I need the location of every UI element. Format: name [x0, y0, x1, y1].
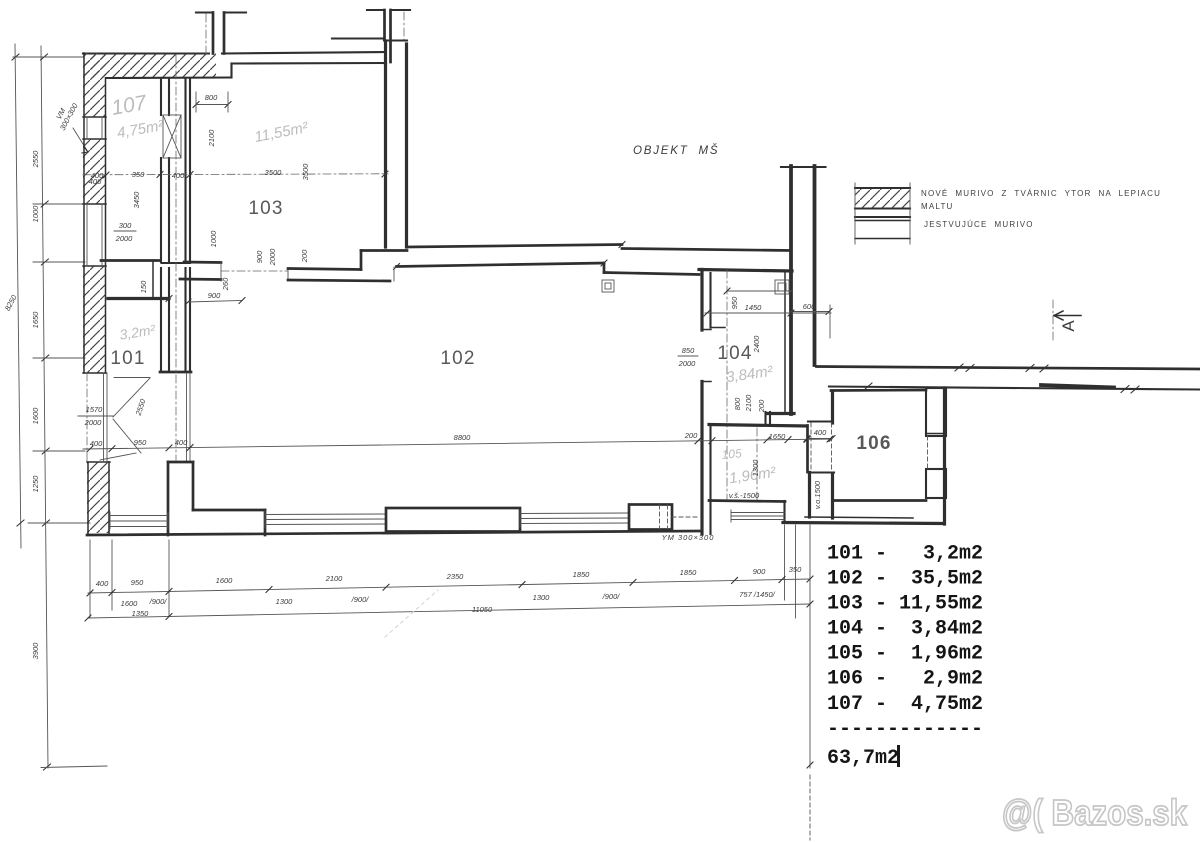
svg-text:v.o.1500: v.o.1500 [813, 480, 822, 509]
svg-text:2550: 2550 [31, 150, 40, 169]
svg-text:800: 800 [205, 93, 218, 102]
svg-text:900: 900 [753, 567, 766, 576]
svg-text:8800: 8800 [454, 433, 472, 442]
svg-text:2350: 2350 [446, 572, 465, 581]
svg-text:8250: 8250 [3, 293, 19, 313]
svg-text:1850: 1850 [680, 568, 698, 577]
svg-text:400: 400 [172, 171, 185, 180]
svg-text:350: 350 [132, 170, 145, 179]
svg-text:900: 900 [208, 291, 221, 300]
svg-text:1600: 1600 [31, 407, 40, 425]
svg-text:1850: 1850 [573, 570, 591, 579]
svg-text:@( Bazos.sk: @( Bazos.sk [1002, 792, 1188, 833]
svg-text:600: 600 [803, 302, 816, 311]
svg-text:1450: 1450 [745, 303, 763, 312]
svg-text:102: 102 [440, 348, 475, 369]
svg-text:v.š.-1500: v.š.-1500 [729, 491, 760, 500]
svg-text:1300: 1300 [533, 593, 551, 602]
svg-text:105 - 1,96m2: 105 - 1,96m2 [827, 643, 983, 666]
svg-text:950: 950 [730, 296, 739, 309]
svg-text:200: 200 [300, 249, 309, 263]
svg-text:1300: 1300 [751, 459, 760, 477]
svg-text:1250: 1250 [31, 475, 40, 493]
svg-text:350: 350 [789, 565, 802, 574]
svg-text:900: 900 [255, 250, 264, 263]
svg-text:1600: 1600 [121, 599, 139, 608]
svg-text:106 - 2,9m2: 106 - 2,9m2 [827, 668, 983, 691]
svg-text:/900/: /900/ [149, 597, 168, 606]
svg-text:103: 103 [248, 198, 283, 219]
svg-text:A: A [1059, 320, 1078, 332]
svg-text:200: 200 [684, 431, 698, 440]
svg-text:2100: 2100 [325, 574, 344, 583]
svg-text:104 - 3,84m2: 104 - 3,84m2 [827, 618, 983, 641]
svg-text:800: 800 [733, 397, 742, 410]
svg-text:400: 400 [90, 439, 103, 448]
svg-text:1650: 1650 [31, 311, 40, 329]
svg-text:-------------: ------------- [827, 718, 983, 741]
svg-text:101: 101 [110, 348, 145, 369]
svg-text:JESTVUJÚCE MURIVO: JESTVUJÚCE MURIVO [924, 220, 1034, 229]
svg-text:YM 300×300: YM 300×300 [662, 533, 715, 542]
svg-text:3900: 3900 [31, 642, 40, 660]
svg-text:104: 104 [717, 343, 752, 364]
svg-text:850: 850 [682, 346, 695, 355]
svg-text:3500: 3500 [265, 168, 283, 177]
svg-text:2100: 2100 [744, 394, 753, 413]
svg-text:3,84m²: 3,84m² [725, 363, 775, 386]
svg-text:2550: 2550 [133, 397, 147, 417]
svg-text:950: 950 [134, 438, 147, 447]
svg-text:2000: 2000 [678, 359, 697, 368]
svg-text:1000: 1000 [209, 230, 218, 248]
svg-text:/900/: /900/ [602, 592, 621, 601]
svg-text:400: 400 [96, 579, 109, 588]
svg-text:NOVÉ MURIVO Z TVÁRNIC YTOR NA: NOVÉ MURIVO Z TVÁRNIC YTOR NA LEPIACU [921, 189, 1161, 198]
svg-text:757 /1450/: 757 /1450/ [739, 590, 775, 599]
svg-text:950: 950 [131, 578, 144, 587]
svg-text:2000: 2000 [115, 234, 134, 243]
svg-text:1300: 1300 [276, 597, 294, 606]
svg-text:1650: 1650 [769, 432, 787, 441]
svg-text:2400: 2400 [752, 335, 761, 354]
svg-text:106: 106 [856, 433, 891, 454]
svg-text:200: 200 [757, 399, 766, 413]
svg-text:1570: 1570 [86, 405, 104, 414]
svg-text:11050: 11050 [472, 605, 493, 614]
svg-text:2000: 2000 [84, 418, 103, 427]
svg-text:102 - 35,5m2: 102 - 35,5m2 [827, 568, 983, 591]
svg-text:3500: 3500 [301, 163, 310, 181]
svg-text:400: 400 [89, 177, 102, 186]
svg-text:MALTU: MALTU [921, 202, 954, 211]
svg-text:107 - 4,75m2: 107 - 4,75m2 [827, 693, 983, 716]
svg-text:260: 260 [221, 277, 230, 291]
svg-text:1600: 1600 [216, 576, 234, 585]
svg-text:103 - 11,55m2: 103 - 11,55m2 [827, 593, 983, 616]
svg-text:105: 105 [721, 446, 742, 462]
svg-text:3450: 3450 [132, 191, 141, 209]
svg-text:107: 107 [110, 91, 150, 120]
svg-text:2100: 2100 [207, 129, 216, 148]
svg-text:400: 400 [175, 438, 188, 447]
svg-text:1000: 1000 [31, 205, 40, 223]
svg-text:101 - 3,2m2: 101 - 3,2m2 [827, 543, 983, 566]
svg-text:400: 400 [814, 428, 827, 437]
svg-text:2000: 2000 [268, 248, 277, 267]
svg-text:300: 300 [119, 221, 132, 230]
svg-text:150: 150 [139, 280, 148, 293]
svg-text:4,75m²: 4,75m² [116, 117, 166, 142]
svg-text:3,2m²: 3,2m² [118, 321, 157, 343]
svg-text:11,55m²: 11,55m² [253, 119, 310, 146]
svg-text:OBJEKT MŠ: OBJEKT MŠ [633, 144, 719, 157]
svg-text:/900/: /900/ [351, 595, 370, 604]
svg-text:63,7m2: 63,7m2 [827, 747, 899, 770]
